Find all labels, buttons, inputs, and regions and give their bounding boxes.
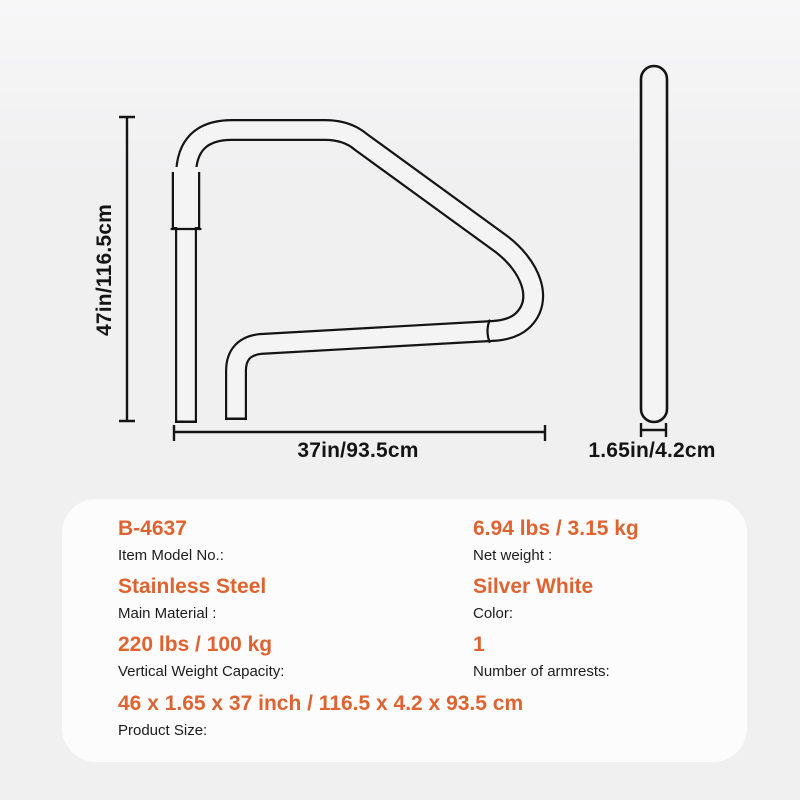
diameter-dimension-label: 1.65in/4.2cm xyxy=(552,439,752,463)
spec-value: 220 lbs / 100 kg xyxy=(118,632,284,657)
spec-armrests: 1 Number of armrests: xyxy=(473,632,610,682)
width-dimension-label: 37in/93.5cm xyxy=(258,439,458,463)
spec-value: 6.94 lbs / 3.15 kg xyxy=(473,516,639,541)
tube-fill xyxy=(186,130,533,421)
height-dimension-label: 47in/116.5cm xyxy=(93,170,115,370)
product-spec-image: 47in/116.5cm 37in/93.5cm 1.65in/4.2cm B-… xyxy=(0,0,800,800)
spec-label: Net weight : xyxy=(473,546,639,566)
handrail-diagram xyxy=(0,0,800,470)
spec-item-model: B-4637 Item Model No.: xyxy=(118,516,224,566)
spec-label: Number of armrests: xyxy=(473,662,610,682)
spec-label: Main Material : xyxy=(118,604,266,624)
spec-color: Silver White Color: xyxy=(473,574,593,624)
tube-capsule xyxy=(641,66,667,422)
spec-capacity: 220 lbs / 100 kg Vertical Weight Capacit… xyxy=(118,632,284,682)
spec-label: Vertical Weight Capacity: xyxy=(118,662,284,682)
diameter-dimension-line xyxy=(641,423,666,437)
height-dimension-line xyxy=(119,117,135,421)
spec-label: Item Model No.: xyxy=(118,546,224,566)
spec-net-weight: 6.94 lbs / 3.15 kg Net weight : xyxy=(473,516,639,566)
spec-material: Stainless Steel Main Material : xyxy=(118,574,266,624)
spec-product-size: 46 x 1.65 x 37 inch / 116.5 x 4.2 x 93.5… xyxy=(118,691,523,741)
spec-value: 46 x 1.65 x 37 inch / 116.5 x 4.2 x 93.5… xyxy=(118,691,523,716)
spec-value: Stainless Steel xyxy=(118,574,266,599)
spec-value: Silver White xyxy=(473,574,593,599)
spec-label: Color: xyxy=(473,604,593,624)
spec-value: 1 xyxy=(473,632,610,657)
spec-value: B-4637 xyxy=(118,516,224,541)
tube-front-view xyxy=(641,66,667,422)
handrail-side-view xyxy=(172,130,534,423)
spec-label: Product Size: xyxy=(118,721,523,741)
